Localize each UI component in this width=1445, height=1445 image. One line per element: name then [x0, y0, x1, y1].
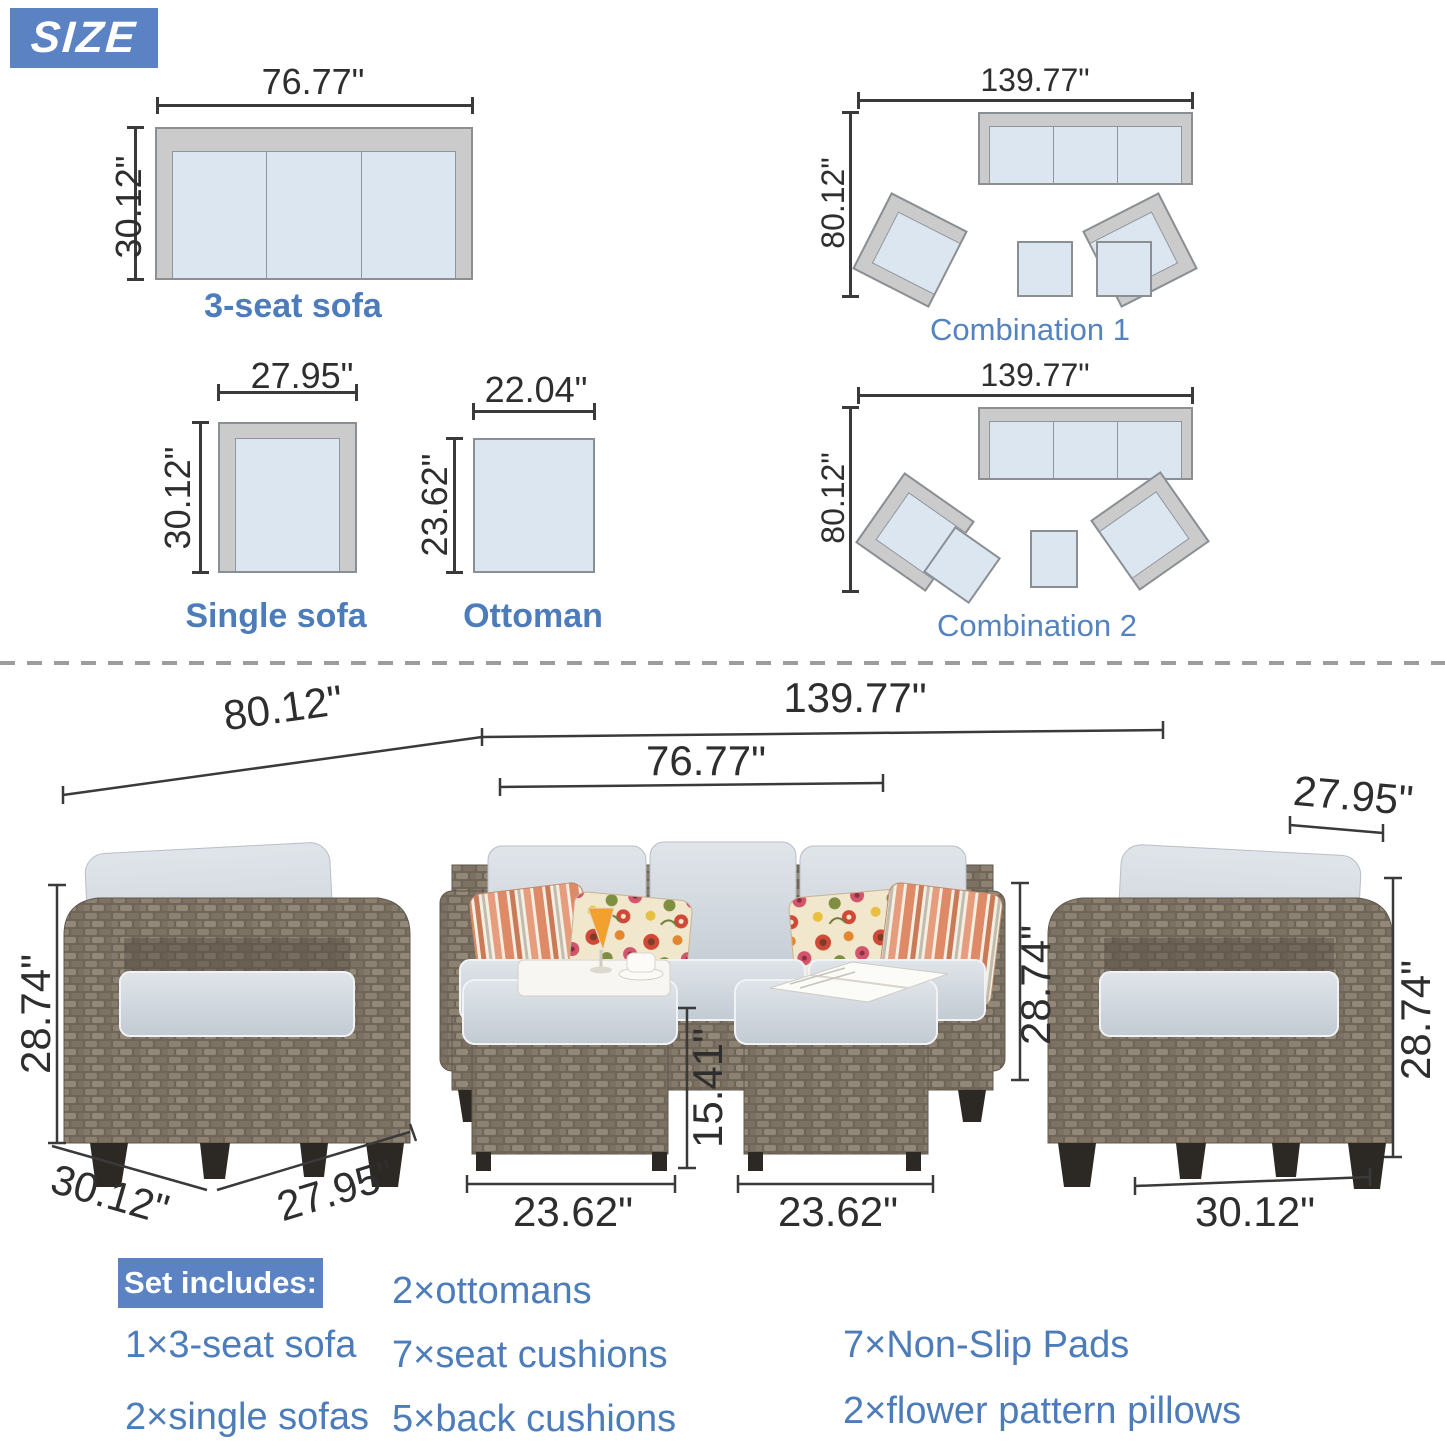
- product-photo: 80.12" 139.77" 76.77" 27.95" 28.74" 30.1…: [0, 665, 1445, 1255]
- combo1-label: Combination 1: [900, 312, 1160, 348]
- combo2-width-line: [858, 394, 1193, 397]
- set-item-seat-cushions: 7×seat cushions: [392, 1334, 668, 1377]
- set-width-label: 139.77": [783, 674, 926, 721]
- right-ottoman-width-label: 23.62": [778, 1188, 898, 1235]
- combo2-sofa: [978, 407, 1193, 480]
- set-item-ottomans: 2×ottomans: [392, 1270, 592, 1313]
- combo1-width-label: 139.77": [935, 64, 1135, 96]
- ottoman-height-label: 15.41": [684, 1028, 731, 1148]
- sofa-top-seats: [172, 151, 456, 278]
- set-item-single-sofas: 2×single sofas: [125, 1396, 369, 1439]
- sofa-width-label: 76.77": [646, 737, 766, 784]
- right-ottoman-photo: [735, 962, 948, 1171]
- left-chair-height-label: 28.74": [12, 954, 59, 1074]
- single-top-width-line: [218, 391, 357, 394]
- combo2-width-label: 139.77": [935, 359, 1135, 391]
- sofa-height-label: 28.74": [1012, 925, 1059, 1045]
- product-size-sheet: SIZE 76.77" 30.12" 3-seat sofa 27.95" 30…: [0, 0, 1445, 1445]
- combo2-right-chair: [1090, 471, 1210, 591]
- combo2-depth-label: 80.12": [817, 418, 849, 578]
- combo1-depth-label: 80.12": [817, 123, 849, 283]
- right-chair-width-label: 27.95": [1291, 767, 1415, 824]
- size-badge: SIZE: [10, 8, 158, 68]
- combo2-center-ottoman: [1030, 530, 1078, 588]
- ottoman-top-width-label: 22.04": [456, 372, 616, 408]
- left-armchair: [64, 842, 410, 1187]
- ottoman-top-label: Ottoman: [413, 597, 653, 636]
- combo1-ottoman-2: [1096, 241, 1152, 297]
- set-includes-header: Set includes:: [118, 1258, 323, 1308]
- left-chair-width-label: 27.95": [272, 1150, 401, 1230]
- combo1-ottoman-1: [1017, 241, 1073, 297]
- single-top-width-label: 27.95": [222, 358, 382, 394]
- set-item-non-slip-pads: 7×Non-Slip Pads: [843, 1324, 1129, 1367]
- combo1-sofa: [978, 112, 1193, 185]
- combo1-width-line: [858, 99, 1193, 102]
- combo2-label: Combination 2: [907, 608, 1167, 644]
- set-item-flower-pillows: 2×flower pattern pillows: [843, 1390, 1241, 1433]
- right-chair-depth-label: 30.12": [1195, 1188, 1315, 1235]
- right-armchair: [1048, 844, 1392, 1189]
- set-item-back-cushions: 5×back cushions: [392, 1398, 676, 1441]
- sofa-top-depth-label: 30.12": [111, 127, 147, 287]
- set-depth-label: 80.12": [220, 676, 345, 739]
- ottoman-top-view: [473, 438, 595, 573]
- ottoman-top-width-line: [473, 410, 595, 413]
- single-top-depth-label: 30.12": [160, 418, 196, 578]
- sofa-top-width-label: 76.77": [233, 64, 393, 100]
- sofa-top-label: 3-seat sofa: [173, 287, 413, 326]
- combo1-left-chair: [852, 192, 968, 308]
- single-sofa-top-view: [218, 422, 357, 573]
- right-chair-height-label: 28.74": [1392, 960, 1439, 1080]
- ottoman-top-depth-label: 23.62": [417, 425, 453, 585]
- single-top-depth-line: [199, 422, 202, 573]
- sofa-top-width-line: [157, 104, 473, 107]
- single-top-label: Single sofa: [156, 597, 396, 636]
- size-badge-label: SIZE: [29, 13, 138, 63]
- sofa-top-view: [155, 127, 473, 280]
- left-ottoman-width-label: 23.62": [513, 1188, 633, 1235]
- set-item-3-seat-sofa: 1×3-seat sofa: [125, 1324, 356, 1367]
